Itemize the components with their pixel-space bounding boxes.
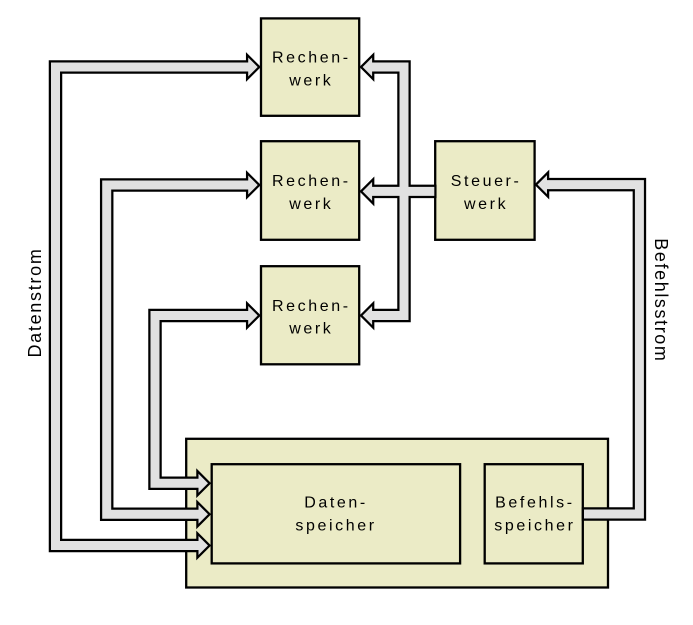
svg-text:werk: werk [288,321,333,338]
svg-text:Befehlsstrom: Befehlsstrom [651,238,671,362]
svg-text:Befehls-: Befehls- [495,495,575,512]
svg-text:speicher: speicher [295,517,376,534]
svg-text:speicher: speicher [494,517,575,534]
svg-text:werk: werk [463,196,508,213]
svg-text:Rechen-: Rechen- [272,173,351,190]
svg-text:Steuer-: Steuer- [451,173,522,190]
svg-text:Daten-: Daten- [304,495,368,512]
svg-text:Rechen-: Rechen- [272,298,351,315]
svg-text:werk: werk [288,196,333,213]
svg-text:werk: werk [288,72,333,89]
svg-text:Rechen-: Rechen- [272,50,351,67]
svg-text:Datenstrom: Datenstrom [25,247,45,357]
